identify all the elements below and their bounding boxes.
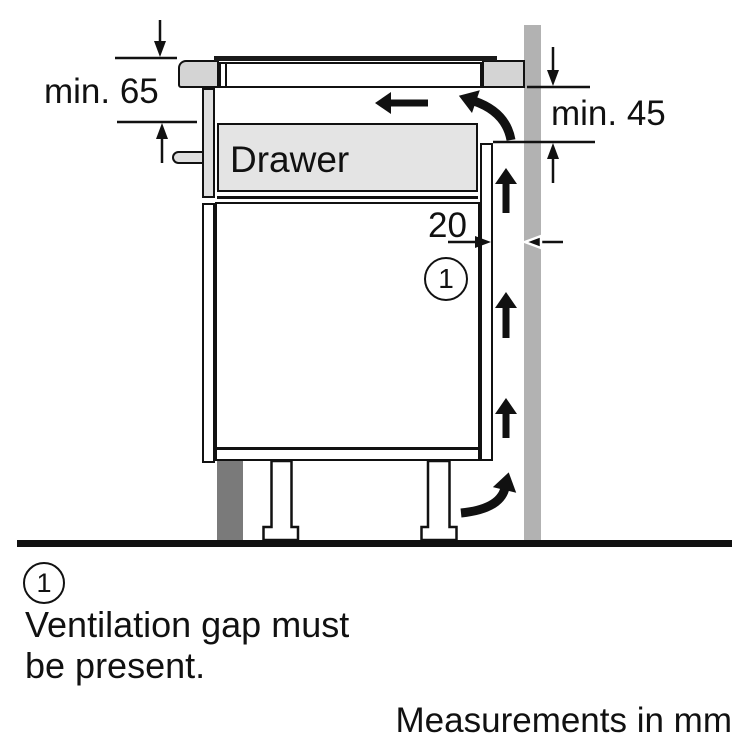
right-leg (422, 461, 457, 540)
dim-gap-label: 20 (428, 208, 467, 243)
callout-1-badge: 1 (424, 257, 468, 301)
hob-glass-top (214, 56, 497, 61)
units-note: Measurements in mm (396, 703, 732, 738)
cabinet-bottom-panel-line (217, 447, 491, 450)
dim-min65-label: min. 65 (44, 74, 159, 109)
airflow-up-arrow-middle (495, 292, 517, 338)
plinth-block (217, 461, 243, 540)
wall (524, 25, 541, 540)
airflow-up-arrow-bottom (495, 398, 517, 438)
legend-callout-number: 1 (36, 568, 51, 599)
callout-1-number: 1 (438, 263, 454, 295)
airflow-left-arrow (375, 92, 428, 114)
cabinet-back-panel (480, 143, 493, 461)
dim-min45-label: min. 45 (551, 96, 666, 131)
hob-front-trim (178, 60, 219, 88)
legend-callout-badge: 1 (23, 562, 65, 604)
drawer-handle (172, 151, 206, 164)
hob-rear-trim (482, 60, 525, 88)
drawer-front-panel (202, 88, 215, 198)
airflow-curve-top-arrow (474, 101, 511, 140)
airflow-up-arrow-top (495, 168, 517, 213)
worktop-joint-line (225, 64, 227, 86)
legend-note-line1: Ventilation gap must (25, 604, 349, 645)
installation-diagram: min. 65 min. 45 20 Drawer 1 1 Ventilatio… (0, 0, 750, 750)
left-leg (264, 461, 299, 540)
drawer-rail-line (217, 196, 478, 199)
legend-note: Ventilation gap must be present. (25, 604, 349, 686)
drawer-label: Drawer (230, 141, 349, 178)
door-front-panel (202, 203, 215, 463)
airflow-curve-bottom-arrow (461, 488, 505, 513)
legend-note-line2: be present. (25, 645, 349, 686)
floor-line (17, 540, 732, 547)
worktop-section (219, 62, 482, 88)
